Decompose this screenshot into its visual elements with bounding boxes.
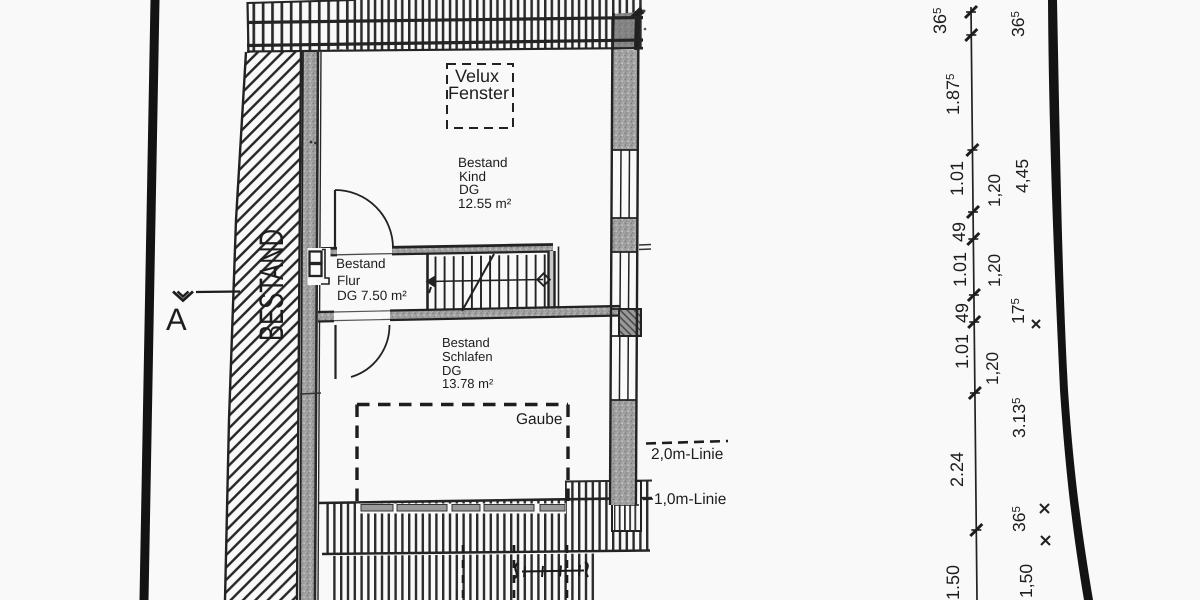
svg-text:1.01: 1.01 <box>950 252 970 287</box>
svg-text:13.78 m²: 13.78 m² <box>442 376 494 391</box>
svg-text:1,20: 1,20 <box>983 352 1002 385</box>
svg-text:49: 49 <box>952 303 972 323</box>
svg-text:Bestand: Bestand <box>336 256 386 271</box>
svg-text:12.55 m²: 12.55 m² <box>458 196 512 211</box>
svg-text:1,50: 1,50 <box>1016 564 1036 598</box>
svg-text:Schlafen: Schlafen <box>442 349 493 364</box>
svg-text:1.01: 1.01 <box>947 161 967 196</box>
svg-text:1,20: 1,20 <box>985 174 1004 207</box>
svg-text:1.01: 1.01 <box>952 334 972 369</box>
svg-text:49: 49 <box>949 222 969 242</box>
svg-text:DG: DG <box>459 182 479 197</box>
svg-text:Fenster: Fenster <box>448 83 509 103</box>
svg-text:A: A <box>166 302 187 337</box>
svg-text:1,20: 1,20 <box>985 254 1004 287</box>
svg-text:BESTAND: BESTAND <box>253 229 291 341</box>
svg-text:4,45: 4,45 <box>1012 159 1032 193</box>
svg-text:2,0m-Linie: 2,0m-Linie <box>651 446 723 463</box>
svg-text:2.24: 2.24 <box>947 452 967 487</box>
svg-text:Bestand: Bestand <box>442 335 490 350</box>
svg-text:1,0m-Linie: 1,0m-Linie <box>654 491 726 508</box>
svg-text:Gaube: Gaube <box>516 411 563 428</box>
svg-text:Flur: Flur <box>337 273 361 288</box>
svg-text:DG 7.50 m²: DG 7.50 m² <box>337 288 407 303</box>
svg-text:Bestand: Bestand <box>458 155 508 170</box>
svg-text:1.50: 1.50 <box>943 565 963 600</box>
